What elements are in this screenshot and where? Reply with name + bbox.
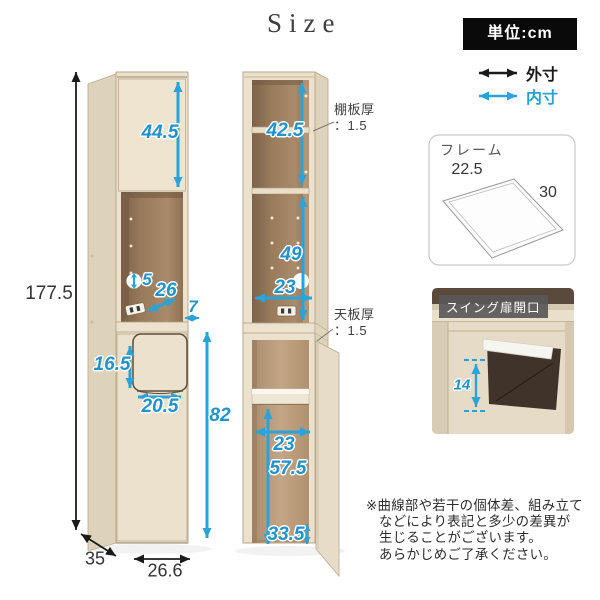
dim-lower-inner-width: 23 [273,434,294,456]
disclaimer-line: ※曲線部や若干の個体差、組み立て [366,498,586,514]
shelf-thickness-value: ：1.5 [334,118,375,134]
disclaimer-line: あらかじめご了承ください。 [366,547,586,563]
left-counter [116,322,188,332]
shelf-pitch-icon [127,273,142,289]
dim-flip-door-width: 20.5 [142,396,179,418]
dim-frame-width: 22.5 [451,161,482,179]
dim-total-height: 177.5 [25,283,73,305]
legend-outer-label: 外寸 [526,61,558,85]
page-title: Size [267,8,342,39]
legend-inner-label: 内寸 [526,84,558,108]
flip-door [133,334,187,391]
middle-counter [243,323,315,333]
shelf-thickness-label: 棚板厚 [334,102,375,118]
dim-width: 26.6 [147,561,182,582]
dim-lower-inner-height: 57.5 [270,458,307,480]
dim-middle-inner-height: 49 [280,244,301,266]
size-diagram: Size 単位:cm 外寸 内寸 177.5 44.5 5 26 7 16.5 … [0,0,600,600]
frame-panel-title: フレーム [440,140,504,160]
dim-lower-height: 82 [209,405,230,427]
swung-open-door [316,341,339,576]
dim-middle-inner-width: 23 [274,277,295,299]
left-niche [121,192,183,322]
disclaimer-text: ※曲線部や若干の個体差、組み立て などにより表記と多少の差異が 生じることがござ… [366,498,586,563]
swing-panel-title: スイング扉開口 [439,295,548,318]
disclaimer-line: 生じることがございます。 [366,530,586,546]
unit-badge: 単位:cm [463,18,577,50]
dim-frame-depth: 30 [539,184,557,202]
middle-outlet [277,306,296,316]
dim-swing-opening-height: 14 [454,377,471,394]
dim-shelf-pitch: 5 [142,270,151,290]
dim-niche-depth: 26 [155,280,176,302]
top-board-note: 天板厚 ：1.5 [334,307,375,338]
dim-upper-inner-height: 42.5 [267,120,304,142]
dim-depth: 35 [85,549,105,570]
dim-upper-door-height: 44.5 [142,122,179,144]
dim-counter-overhang: 7 [188,297,197,317]
top-board-label: 天板厚 [334,307,375,323]
dim-flip-door-height: 16.5 [94,354,131,376]
legend-arrows [479,73,517,96]
middle-cabinet-illustration [235,72,345,576]
disclaimer-line: などにより表記と多少の差異が [366,514,586,530]
shelf-thickness-note: 棚板厚 ：1.5 [334,102,375,133]
dim-door-opening: 33.5 [268,524,305,546]
top-board-value: ：1.5 [334,323,375,339]
